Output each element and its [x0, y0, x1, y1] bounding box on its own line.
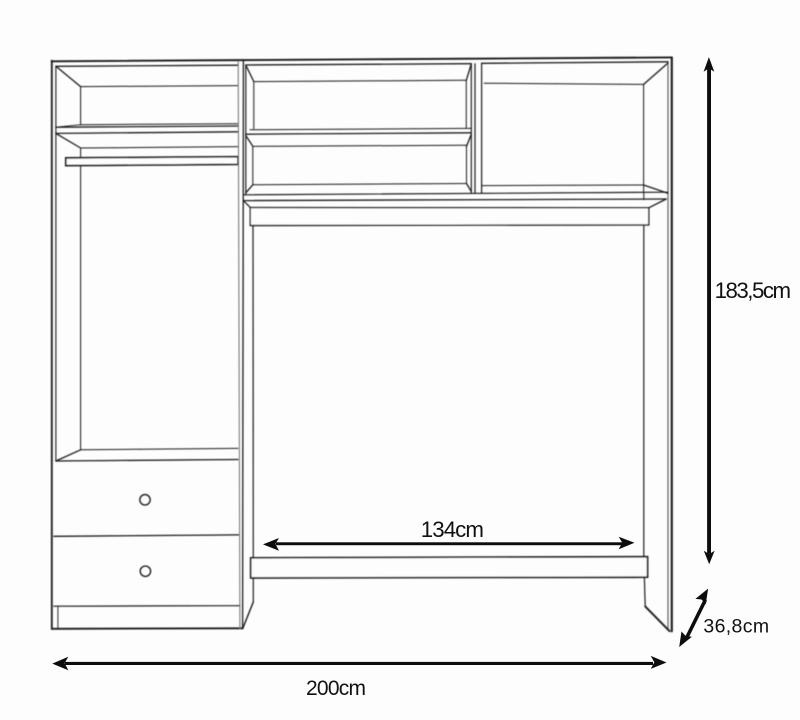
svg-text:200cm: 200cm	[306, 677, 366, 700]
svg-text:183,5cm: 183,5cm	[715, 278, 791, 303]
svg-text:134cm: 134cm	[421, 517, 484, 542]
svg-text:36,8cm: 36,8cm	[703, 616, 769, 638]
